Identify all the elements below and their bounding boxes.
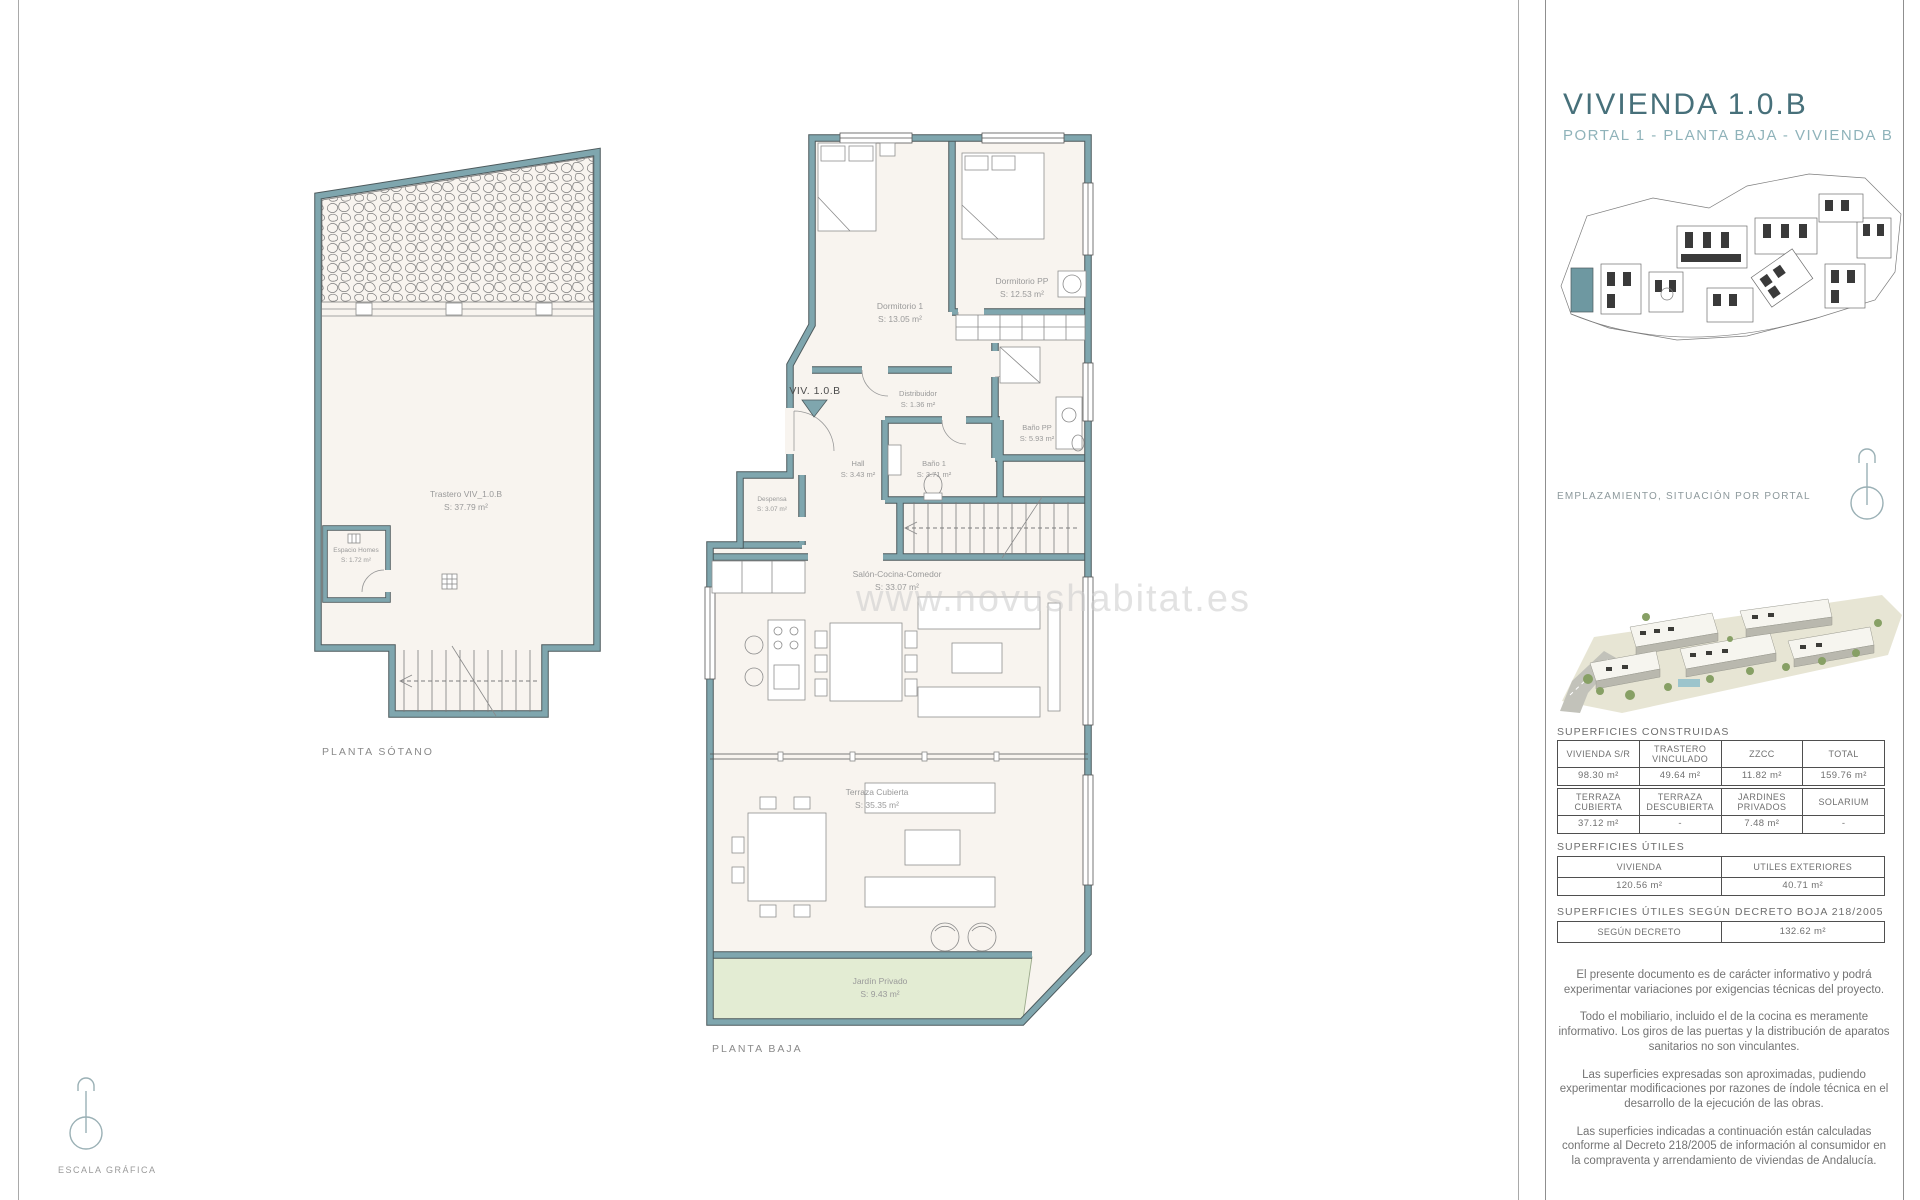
table-header-cell: SOLARIUM — [1803, 789, 1885, 816]
wardrobe — [956, 315, 1085, 340]
stone-hatch-area — [322, 157, 593, 302]
vent-grid-icon — [348, 534, 360, 543]
superficies-construidas-title: SUPERFICIES CONSTRUIDAS — [1557, 726, 1729, 738]
caption-planta-baja: PLANTA BAJA — [712, 1043, 803, 1055]
table-value-cell: 11.82 m² — [1721, 768, 1803, 786]
aerial-render — [1560, 583, 1905, 715]
legal-paragraph: El presente documento es de carácter inf… — [1557, 968, 1891, 997]
sheet-left-edge-line — [18, 0, 19, 1200]
table-value-cell: 37.12 m² — [1558, 816, 1640, 834]
table-header-cell: VIVIENDA S/R — [1558, 741, 1640, 768]
escala-grafica-label: ESCALA GRÁFICA — [58, 1165, 157, 1175]
table-value-cell: 132.62 m² — [1721, 922, 1885, 943]
panel-subtitle: PORTAL 1 - PLANTA BAJA - VIVIENDA B — [1563, 127, 1893, 144]
emplazamiento-label: EMPLAZAMIENTO, SITUACIÓN POR PORTAL — [1557, 491, 1811, 502]
room-label-espacio-homes: Espacio Homes S: 1.72 m² — [333, 546, 379, 566]
table-value-cell: 7.48 m² — [1721, 816, 1803, 834]
panel-divider-line — [1518, 0, 1519, 1200]
highlighted-unit — [1571, 268, 1593, 312]
table-superficies-construidas: VIVIENDA S/R TRASTERO VINCULADO ZZCC TOT… — [1557, 740, 1885, 786]
legal-paragraph: Las superficies indicadas a continuación… — [1557, 1125, 1891, 1169]
siteplan-buildings — [1601, 194, 1891, 322]
table-value-cell: 40.71 m² — [1721, 878, 1885, 896]
table-header-cell: TERRAZA DESCUBIERTA — [1639, 789, 1721, 816]
table-value-cell: - — [1803, 816, 1885, 834]
entry-label-viv10b: VIV. 1.0.B — [789, 385, 840, 397]
north-compass-icon — [1844, 447, 1890, 525]
room-label-terraza: Terraza Cubierta S: 35.35 m² — [846, 786, 909, 812]
table-value-cell: 120.56 m² — [1558, 878, 1722, 896]
room-label-trastero: Trastero VIV_1.0.B S: 37.79 m² — [430, 488, 502, 514]
scale-compass-icon — [62, 1077, 110, 1155]
table-value-cell: - — [1639, 816, 1721, 834]
table-segun-decreto: SEGÚN DECRETO 132.62 m² — [1557, 921, 1885, 943]
table-header-cell: UTILES EXTERIORES — [1721, 857, 1885, 878]
plan-sheet: Trastero VIV_1.0.B S: 37.79 m² Espacio H… — [0, 0, 1920, 1200]
table-header-cell: TOTAL — [1803, 741, 1885, 768]
siteplan-drawing — [1557, 168, 1905, 418]
table-superficies-utiles: VIVIENDA UTILES EXTERIORES 120.56 m² 40.… — [1557, 856, 1885, 896]
floor-drain-icon — [442, 574, 457, 589]
table-header-cell: ZZCC — [1721, 741, 1803, 768]
room-label-despensa: Despensa S: 3.07 m² — [757, 495, 787, 515]
table-header-cell: JARDINES PRIVADOS — [1721, 789, 1803, 816]
table-header-cell: SEGÚN DECRETO — [1558, 922, 1722, 943]
room-label-bano1: Baño 1 S: 3.71 m² — [917, 458, 952, 481]
legal-notes: El presente documento es de carácter inf… — [1557, 968, 1891, 1182]
room-label-hall: Hall S: 3.43 m² — [841, 458, 876, 481]
table-value-cell: 98.30 m² — [1558, 768, 1640, 786]
table-header-cell: TERRAZA CUBIERTA — [1558, 789, 1640, 816]
superficies-utiles-title: SUPERFICIES ÚTILES — [1557, 841, 1685, 853]
table-header-cell: VIVIENDA — [1558, 857, 1722, 878]
room-label-dormitorio1: Dormitorio 1 S: 13.05 m² — [877, 300, 923, 326]
panel-title: VIVIENDA 1.0.B — [1563, 88, 1808, 122]
legal-paragraph: Las superficies expresadas son aproximad… — [1557, 1068, 1891, 1112]
table-value-cell: 49.64 m² — [1639, 768, 1721, 786]
table-header-cell: TRASTERO VINCULADO — [1639, 741, 1721, 768]
dining-table — [815, 623, 917, 701]
room-label-jardin: Jardín Privado S: 9.43 m² — [853, 975, 908, 1001]
room-label-distribuidor: Distribuidor S: 1.36 m² — [899, 388, 937, 411]
table-superficies-exteriores: TERRAZA CUBIERTA TERRAZA DESCUBIERTA JAR… — [1557, 788, 1885, 834]
planta-sotano-drawing — [300, 142, 620, 762]
room-label-dormitorio-pp: Dormitorio PP S: 12.53 m² — [996, 275, 1049, 301]
superficies-decreto-title: SUPERFICIES ÚTILES SEGÚN DECRETO BOJA 21… — [1557, 906, 1884, 918]
caption-planta-sotano: PLANTA SÓTANO — [322, 746, 434, 758]
table-value-cell: 159.76 m² — [1803, 768, 1885, 786]
room-label-bano-pp: Baño PP S: 5.93 m² — [1020, 422, 1055, 445]
watermark-text: www.novushabitat.es — [856, 578, 1251, 621]
legal-paragraph: Todo el mobiliario, incluido el de la co… — [1557, 1010, 1891, 1054]
